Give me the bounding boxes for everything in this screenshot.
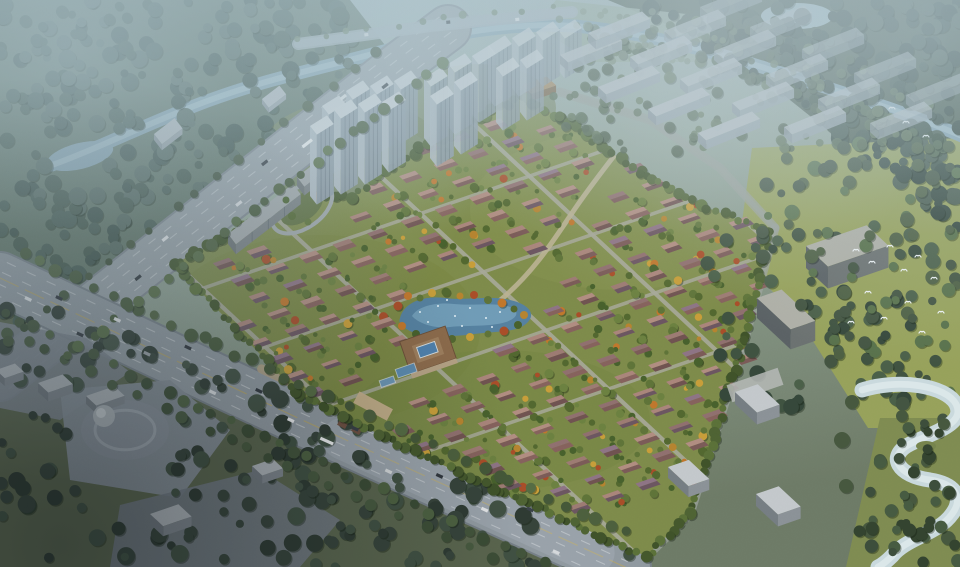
aerial-render-screenshot — [0, 0, 960, 567]
aerial-masterplan-rendering — [0, 0, 960, 567]
grain-overlay — [0, 0, 960, 567]
